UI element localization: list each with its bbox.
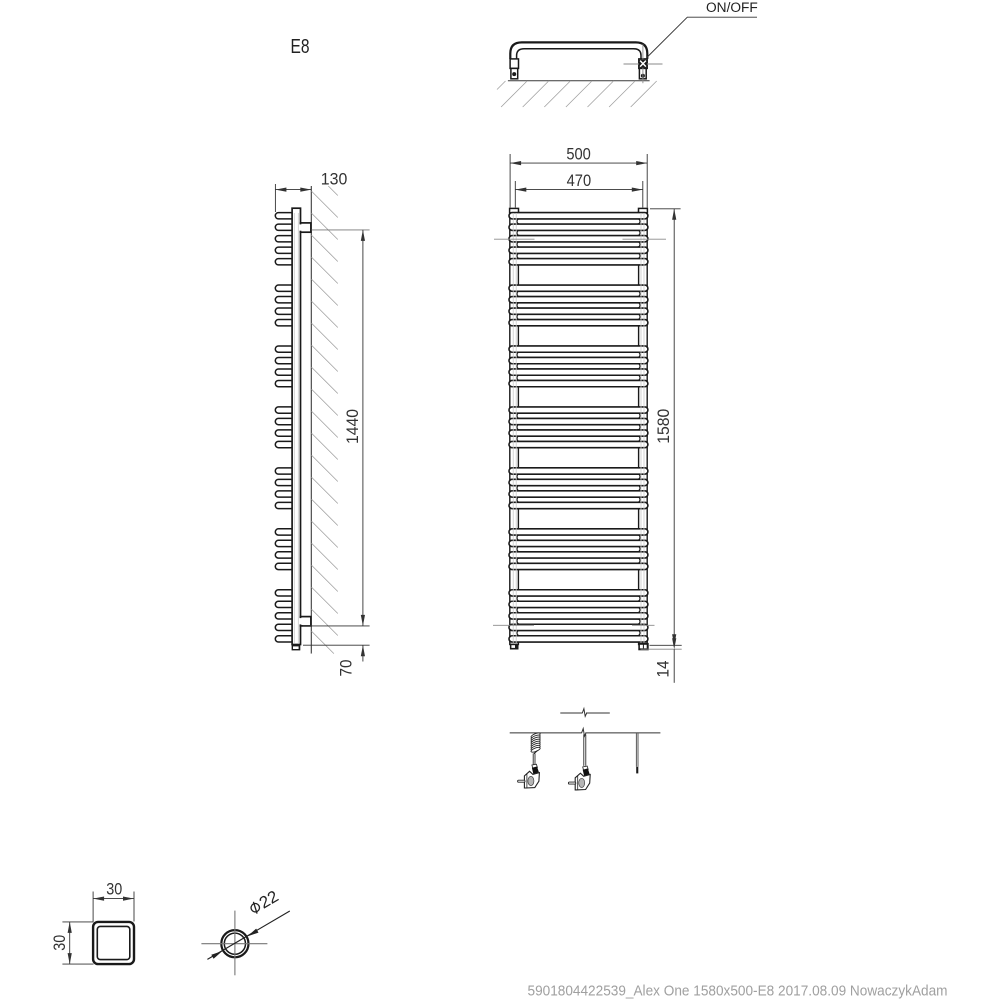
svg-text:22: 22 (256, 887, 281, 912)
svg-text:70: 70 (338, 660, 356, 677)
svg-text:1440: 1440 (344, 409, 362, 444)
svg-text:130: 130 (321, 170, 348, 188)
svg-text:14: 14 (655, 661, 673, 678)
svg-text:500: 500 (566, 145, 591, 163)
svg-text:470: 470 (567, 172, 592, 190)
svg-text:E8: E8 (291, 35, 310, 58)
svg-text:1580: 1580 (655, 409, 673, 444)
svg-text:ON/OFF: ON/OFF (706, 0, 758, 16)
svg-text:30: 30 (106, 880, 122, 898)
svg-text:5901804422539_Alex One 1580x50: 5901804422539_Alex One 1580x500-E8 2017.… (528, 982, 948, 999)
svg-text:30: 30 (51, 935, 69, 951)
